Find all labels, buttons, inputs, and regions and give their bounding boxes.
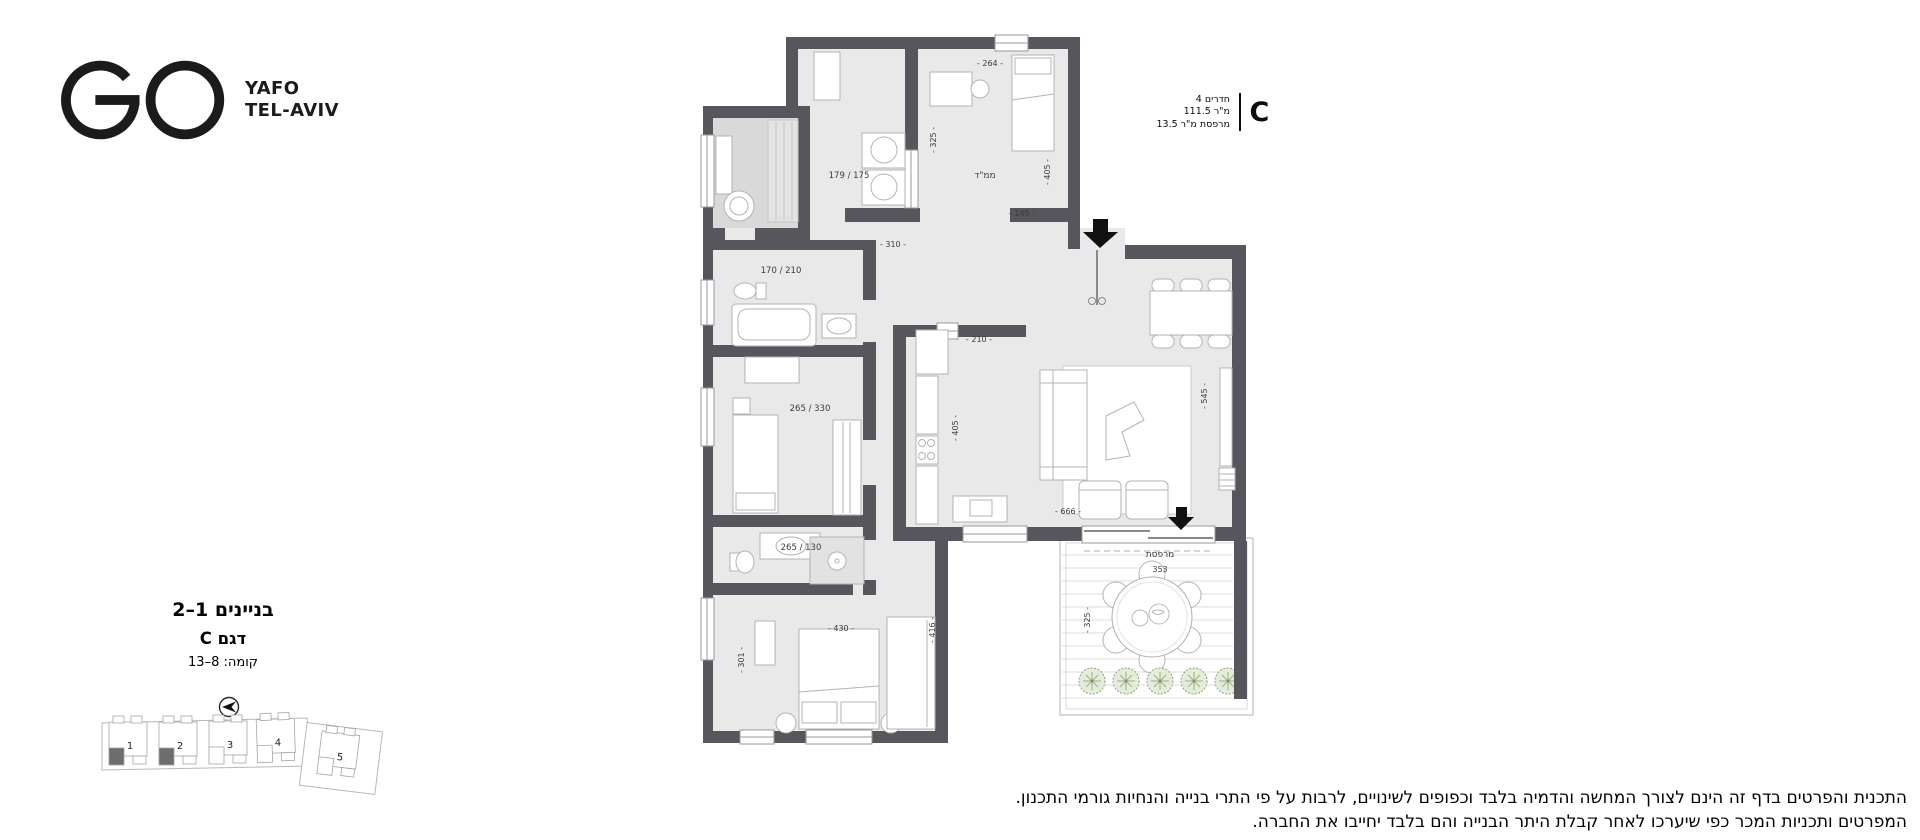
disclaimer: התכנית והפרטים בדף זה הינם לצורך המחשה ו… (1016, 786, 1907, 835)
site-plan: 12345 (88, 685, 400, 803)
plant-icon (1079, 668, 1105, 694)
dim-label: - 545 - (1200, 383, 1209, 409)
title-floors: קומה: 8–13 (128, 655, 318, 670)
brand-name: YAFO TEL-AVIV (245, 78, 339, 123)
room-label-bedroom2: 265 / 330 (790, 404, 831, 414)
plant-icon (1181, 668, 1207, 694)
dim-label: - 416 - (928, 617, 937, 643)
dim-label: - 264 - (977, 59, 1003, 68)
title-model: דגם C (128, 629, 318, 648)
site-building-number: 3 (227, 740, 233, 751)
brand-logo: YAFO TEL-AVIV (56, 54, 339, 146)
dim-label: 353 (1152, 565, 1167, 574)
dim-label: - 310 - (880, 240, 906, 249)
site-building-number: 1 (127, 741, 133, 752)
room-label-mamad: ממ"ד (974, 171, 995, 181)
dim-label: - 301 - (737, 647, 746, 673)
title-block: בניינים 1–2 דגם C קומה: 8–13 (128, 599, 318, 670)
dim-label: - 325 - (929, 127, 938, 153)
north-compass-icon (220, 698, 239, 717)
dim-label: - 430 - (828, 624, 854, 633)
dim-label: - 210 - (966, 335, 992, 344)
room-label-bath-lower: 265 / 130 (781, 543, 822, 553)
disclaimer-line1: התכנית והפרטים בדף זה הינם לצורך המחשה ו… (1016, 786, 1907, 810)
plant-icon (1147, 668, 1173, 694)
go-logo-icon (56, 54, 228, 146)
disclaimer-line2: המפרטים ותכניות המכר כפי שיערכו לאחר קבל… (1016, 810, 1907, 834)
floor-plan: - 264 - - 405 - - 325 - - 145 - ממ"ד 179… (693, 15, 1278, 783)
plant-icon (1113, 668, 1139, 694)
dim-label: - 145 - (1009, 209, 1035, 218)
room-label-bath-top: 179 / 175 (829, 171, 870, 181)
room-label-bath-mid: 170 / 210 (761, 266, 802, 276)
dim-label: - 325 - (1083, 607, 1092, 633)
dim-label: - 666 - (1055, 507, 1081, 516)
dim-label: - 405 - (1043, 159, 1052, 185)
brand-city-line2: TEL-AVIV (245, 100, 339, 123)
site-building-number: 5 (336, 752, 344, 764)
dim-label: - 405 - (951, 415, 960, 441)
site-building-number: 2 (177, 741, 183, 752)
title-buildings: בניינים 1–2 (128, 599, 318, 621)
room-label-balcony: מרפסת (1146, 550, 1175, 560)
site-building-number: 4 (275, 738, 282, 749)
brand-city-line1: YAFO (245, 78, 339, 101)
